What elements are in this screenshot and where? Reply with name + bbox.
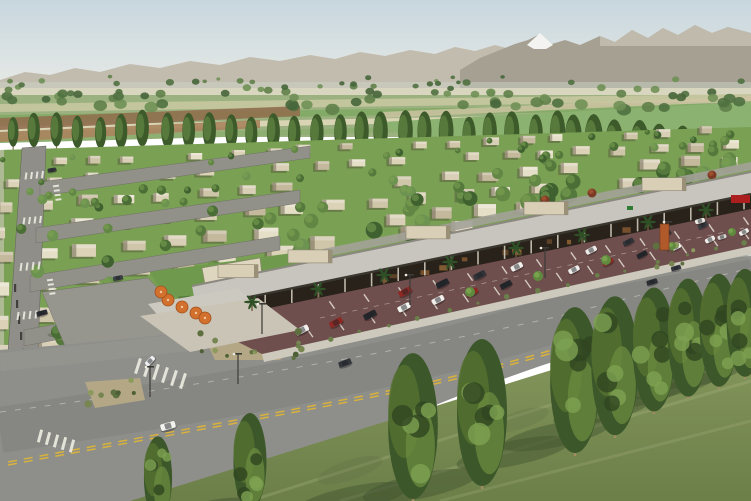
- house-shade-side: [72, 244, 76, 257]
- distant-tree: [166, 79, 174, 86]
- distant-tree: [672, 76, 679, 82]
- poplar-highlight: [72, 119, 79, 141]
- house-shade-side: [474, 204, 478, 216]
- tree-highlight: [466, 288, 472, 294]
- distant-tree: [372, 91, 382, 99]
- tree-highlight: [48, 231, 54, 237]
- distant-tree: [216, 77, 220, 80]
- tree-highlight: [654, 132, 658, 136]
- foliage-clump: [233, 467, 247, 481]
- tree-highlight: [677, 169, 685, 177]
- canopy-column: [690, 206, 692, 220]
- foliage-clump: [468, 423, 491, 446]
- shrub: [85, 400, 92, 407]
- distant-tree: [325, 104, 339, 115]
- distant-tree: [463, 79, 471, 86]
- shrub: [669, 261, 675, 267]
- house-shade-side: [200, 188, 203, 196]
- distant-tree: [73, 91, 82, 98]
- lamp-head: [257, 303, 260, 306]
- foliage-clump: [731, 311, 746, 326]
- tree-highlight: [729, 229, 733, 233]
- canopy-column: [610, 223, 612, 237]
- parapet-box: [288, 250, 332, 263]
- shrub: [714, 247, 718, 251]
- red-tree-highlight: [709, 171, 714, 176]
- shrub: [387, 324, 390, 327]
- storefront-light: [547, 239, 552, 243]
- tree-highlight: [487, 138, 490, 141]
- tree-highlight: [39, 180, 42, 183]
- foliage-clump: [699, 320, 715, 336]
- foliage-clump: [463, 382, 485, 404]
- canopy-column: [637, 217, 639, 231]
- parapet-shade: [446, 226, 450, 239]
- shrub: [595, 273, 600, 278]
- parapet-shade: [254, 265, 258, 278]
- poplar-highlight: [115, 118, 123, 141]
- shrub: [447, 308, 452, 313]
- green-sign: [627, 206, 633, 210]
- shrub: [680, 262, 684, 266]
- distant-tree: [7, 96, 17, 104]
- distant-tree: [317, 84, 322, 88]
- distant-tree: [435, 81, 441, 86]
- monument-sign: [660, 224, 669, 250]
- foliage-clump: [411, 464, 430, 483]
- poplar-highlight: [311, 118, 319, 143]
- red-storefront-sign: [731, 195, 750, 203]
- distant-tree: [56, 97, 67, 105]
- distant-tree: [444, 91, 452, 97]
- curb-mark: [20, 332, 22, 340]
- distant-tree: [285, 99, 298, 110]
- foliage-clump: [731, 350, 747, 366]
- house-roof-light: [0, 228, 5, 231]
- foliage-clump: [604, 395, 620, 411]
- shrub: [295, 328, 302, 335]
- tree-highlight: [228, 153, 232, 157]
- tree-highlight: [70, 155, 73, 158]
- foliage-clump: [153, 484, 164, 495]
- house-shade-side: [386, 214, 389, 225]
- house-shade-side: [273, 163, 276, 171]
- distant-tree: [115, 89, 122, 95]
- house-shade-side: [491, 187, 494, 196]
- distant-tree: [370, 84, 376, 89]
- tree-highlight: [123, 196, 129, 202]
- poplar-highlight: [183, 117, 191, 141]
- canopy-column: [344, 278, 346, 292]
- house-shade-side: [114, 195, 118, 203]
- tree-highlight: [416, 216, 425, 225]
- poplar-highlight: [246, 120, 254, 143]
- tree-highlight: [406, 187, 412, 193]
- distant-tree: [431, 89, 439, 95]
- distant-tree: [486, 89, 495, 97]
- umbrella-pole: [195, 312, 197, 314]
- house-roof-light: [0, 252, 13, 255]
- house-shade-side: [273, 183, 277, 191]
- poplar-highlight: [267, 117, 275, 141]
- house-roof-light: [0, 282, 9, 286]
- canopy-column: [424, 261, 426, 275]
- red-tree-highlight: [542, 196, 547, 201]
- distant-tree: [350, 81, 357, 86]
- distant-tree: [427, 81, 433, 86]
- house-roof-light: [0, 202, 12, 205]
- distant-tree: [243, 84, 251, 91]
- tree-highlight: [197, 226, 203, 232]
- foliage-clump: [489, 405, 504, 420]
- house-shade-side: [188, 153, 190, 159]
- foliage-clump: [555, 338, 578, 361]
- shrub: [566, 283, 570, 287]
- rendering-canvas: Aerial 3D architectural rendering of a m…: [0, 0, 751, 501]
- poplar-highlight: [51, 116, 59, 139]
- house-shade-side: [153, 193, 156, 202]
- house-shade-side: [123, 241, 127, 251]
- distant-tree: [634, 86, 642, 93]
- distant-tree: [351, 98, 362, 107]
- tree-highlight: [602, 256, 608, 262]
- poplar-highlight: [226, 118, 234, 141]
- shrub: [200, 349, 204, 353]
- distant-tree: [237, 78, 244, 84]
- poplar-highlight: [355, 116, 364, 143]
- tree-highlight: [691, 137, 695, 141]
- distant-tree: [451, 76, 456, 80]
- parapet-shade: [682, 178, 686, 191]
- tree-highlight: [139, 185, 144, 190]
- poplar-highlight: [203, 116, 211, 141]
- tree-highlight: [455, 148, 458, 151]
- umbrella-pole: [181, 306, 183, 308]
- distant-tree: [668, 92, 677, 99]
- distant-tree: [339, 81, 344, 85]
- tree-highlight: [589, 134, 593, 138]
- foliage-clump: [250, 453, 262, 465]
- house-shade-side: [447, 141, 449, 148]
- tree-highlight: [104, 224, 109, 229]
- lamp-head: [540, 247, 543, 250]
- tree-highlight: [296, 240, 304, 248]
- tree-highlight: [369, 169, 374, 174]
- distant-tree: [301, 100, 312, 109]
- pole: [149, 367, 150, 397]
- house-shade-side: [479, 173, 483, 181]
- poplar-highlight: [288, 120, 296, 143]
- shrub: [504, 294, 509, 299]
- poplar-highlight: [335, 118, 343, 142]
- tree-highlight: [534, 272, 540, 278]
- distant-tree: [39, 78, 46, 83]
- tree-highlight: [288, 230, 295, 237]
- tree-highlight: [727, 131, 732, 136]
- shrub: [98, 392, 104, 398]
- umbrella-pole: [160, 291, 162, 293]
- distant-tree: [642, 102, 655, 112]
- tree-highlight: [367, 223, 376, 232]
- house-shade-side: [240, 185, 243, 194]
- house-shade-side: [349, 159, 352, 166]
- tree-highlight: [38, 195, 43, 200]
- distant-tree: [281, 84, 288, 90]
- foliage-clump: [392, 405, 413, 426]
- tree-highlight: [518, 146, 522, 150]
- foliage-clump: [565, 397, 581, 413]
- house-shade-side: [315, 161, 317, 170]
- distant-tree: [221, 90, 230, 97]
- poplar-highlight: [28, 117, 36, 140]
- tree-highlight: [102, 256, 109, 263]
- tree-highlight: [539, 155, 543, 159]
- shrub: [654, 264, 659, 269]
- distant-tree: [490, 99, 501, 108]
- distant-tree: [365, 75, 371, 80]
- shrub: [132, 391, 136, 395]
- parapet-box: [218, 265, 258, 278]
- house-shade-side: [6, 179, 8, 187]
- distant-tree: [57, 90, 67, 98]
- lamp-head: [405, 274, 408, 277]
- house-shade-side: [340, 143, 342, 149]
- shrub: [535, 288, 541, 294]
- tree-highlight: [292, 147, 296, 151]
- tree-highlight: [521, 142, 525, 146]
- foliage-clump: [145, 459, 157, 471]
- distant-tree: [5, 87, 13, 93]
- distant-tree: [575, 99, 588, 109]
- house-shade-side: [310, 236, 314, 249]
- tree-highlight: [17, 225, 23, 231]
- tree-highlight: [389, 176, 394, 181]
- tree-highlight: [162, 199, 167, 204]
- house-shade-side: [561, 163, 564, 173]
- foliage-clump: [654, 346, 671, 363]
- canopy-column: [504, 245, 506, 259]
- house-shade-side: [442, 172, 445, 180]
- distant-tree: [457, 100, 468, 109]
- storefront-light: [462, 257, 467, 261]
- poplar-highlight: [136, 114, 144, 139]
- house-shade-side: [681, 156, 684, 166]
- poplar-highlight: [162, 116, 170, 140]
- tree-highlight: [253, 219, 259, 225]
- tree-highlight: [412, 194, 419, 201]
- tree-highlight: [396, 149, 400, 153]
- distant-tree: [42, 96, 51, 103]
- tree-highlight: [454, 183, 460, 189]
- umbrella-pole: [167, 299, 169, 301]
- tree-highlight: [680, 143, 684, 147]
- house-roof-light: [0, 316, 8, 320]
- foliage-clump: [651, 331, 668, 348]
- canopy-column: [371, 272, 373, 286]
- foliage-clump: [593, 313, 612, 332]
- lamp-head: [233, 353, 236, 356]
- tree-highlight: [27, 188, 31, 192]
- tree-highlight: [383, 153, 387, 157]
- canopy-column: [397, 267, 399, 281]
- storefront-light: [567, 240, 571, 245]
- tree-highlight: [297, 175, 301, 179]
- distant-tree: [500, 75, 505, 79]
- tree-highlight: [91, 198, 96, 203]
- parapet-box: [642, 178, 686, 191]
- distant-tree: [156, 90, 166, 98]
- shrub: [212, 348, 218, 354]
- house-shade-side: [413, 142, 415, 149]
- tree-highlight: [265, 213, 272, 220]
- shrub: [623, 270, 626, 273]
- pole: [544, 248, 545, 278]
- foliage-clump: [162, 452, 171, 461]
- canopy-column: [477, 250, 479, 264]
- tree-highlight: [493, 169, 499, 175]
- tree-highlight: [0, 157, 3, 160]
- canopy-column: [557, 234, 559, 248]
- house-shade-side: [619, 178, 622, 188]
- shrub: [358, 330, 361, 333]
- house-shade-side: [466, 152, 468, 160]
- distant-tree: [18, 82, 25, 87]
- house-shade-side: [550, 134, 552, 141]
- tree-highlight: [659, 163, 666, 170]
- distant-tree: [456, 81, 461, 85]
- foliage-clump: [709, 334, 722, 347]
- distant-tree: [616, 90, 626, 98]
- house-shade-side: [700, 126, 702, 133]
- tree-highlight: [184, 187, 188, 191]
- aerial-rendering: Aerial 3D architectural rendering of a m…: [0, 0, 751, 501]
- distant-tree: [192, 79, 200, 85]
- distant-tree: [552, 98, 564, 107]
- curb-mark: [16, 300, 18, 308]
- distant-tree: [264, 87, 273, 94]
- tree-highlight: [651, 144, 655, 148]
- tree-highlight: [645, 130, 648, 133]
- house-shade-side: [624, 133, 626, 140]
- foliage-clump: [249, 476, 262, 489]
- umbrella-pole: [204, 317, 206, 319]
- house-shade-side: [573, 146, 576, 154]
- tree-highlight: [610, 143, 615, 148]
- house-shade-side: [505, 151, 508, 158]
- storefront-light: [622, 227, 630, 233]
- pole: [237, 354, 238, 384]
- distant-tree: [540, 94, 549, 101]
- shrub: [88, 390, 94, 396]
- shrub: [116, 390, 121, 395]
- curb-mark: [14, 284, 16, 292]
- distant-tree: [708, 94, 718, 102]
- distant-tree: [94, 100, 107, 111]
- distant-tree: [511, 102, 521, 110]
- tree-highlight: [710, 141, 715, 146]
- house-shade-side: [254, 228, 258, 240]
- red-tree-highlight: [589, 189, 594, 194]
- parapet-box: [524, 202, 568, 215]
- distant-tree: [156, 99, 168, 108]
- house-shade-side: [389, 157, 392, 164]
- shrub: [476, 302, 479, 305]
- distant-tree: [413, 84, 419, 89]
- parapet-shade: [564, 202, 568, 215]
- lamp-head: [145, 366, 148, 369]
- tree-highlight: [721, 137, 726, 142]
- house-shade-side: [432, 207, 436, 218]
- distant-tree: [471, 91, 480, 98]
- foliage-clump: [632, 346, 650, 364]
- tree-highlight: [158, 186, 163, 191]
- tree-highlight: [546, 161, 552, 167]
- distant-tree: [258, 87, 265, 92]
- canopy-column: [291, 289, 293, 303]
- tree-highlight: [567, 175, 575, 183]
- shrub: [653, 243, 660, 250]
- shrub: [296, 344, 301, 349]
- shrub: [253, 351, 256, 354]
- tree-highlight: [208, 160, 211, 163]
- shrub: [741, 240, 747, 246]
- tree-highlight: [46, 192, 50, 196]
- poplar-highlight: [95, 121, 102, 142]
- tree-highlight: [318, 203, 324, 209]
- canopy-column: [530, 239, 532, 253]
- foliage-clump: [732, 333, 748, 349]
- tree-highlight: [497, 188, 505, 196]
- distant-tree: [67, 90, 75, 96]
- tree-highlight: [212, 185, 216, 189]
- shrub: [328, 337, 333, 342]
- tree-highlight: [305, 215, 313, 223]
- distant-tree: [718, 98, 730, 108]
- house-shade-side: [54, 158, 56, 165]
- shrub: [225, 354, 229, 358]
- distant-tree: [659, 103, 670, 112]
- house-shade-side: [688, 143, 691, 152]
- house-shade-side: [640, 159, 644, 169]
- distant-tree: [503, 90, 513, 98]
- tree-highlight: [296, 203, 302, 209]
- canopy-column: [717, 201, 719, 215]
- distant-tree: [568, 80, 575, 85]
- distant-tree: [249, 80, 255, 85]
- distant-tree: [145, 102, 158, 113]
- distant-tree: [7, 79, 13, 84]
- distant-tree: [597, 84, 606, 91]
- shrub: [686, 253, 689, 256]
- tree-highlight: [722, 158, 731, 167]
- tree-highlight: [464, 192, 472, 200]
- distant-tree: [203, 80, 207, 84]
- distant-tree: [447, 86, 454, 91]
- tree-highlight: [562, 188, 571, 197]
- house-shade-side: [520, 167, 523, 177]
- foliage-clump: [674, 336, 689, 351]
- shrub: [128, 378, 133, 383]
- distant-tree: [289, 94, 299, 102]
- parapet-box: [406, 226, 450, 239]
- lamp-head: [663, 221, 666, 224]
- shrub: [197, 330, 203, 336]
- distant-tree: [108, 75, 113, 79]
- storefront-light: [502, 250, 508, 255]
- tree-highlight: [208, 206, 214, 212]
- tree-highlight: [69, 189, 73, 193]
- pole: [409, 275, 410, 305]
